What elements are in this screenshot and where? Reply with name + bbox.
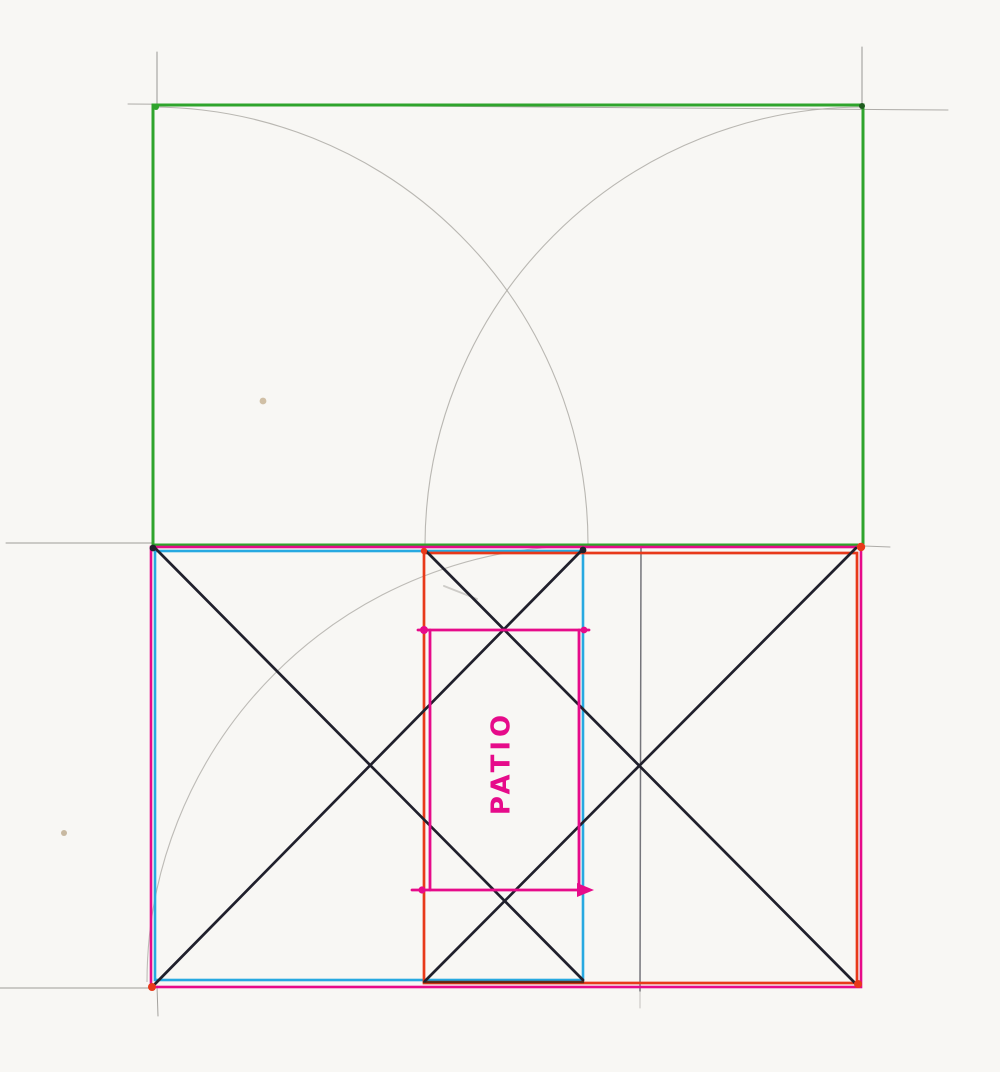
patio-label: PATIO <box>487 711 517 815</box>
paper-speck-lower <box>61 830 67 836</box>
patio-top-left-dot <box>420 626 428 634</box>
patio-top-right-dot <box>581 627 588 634</box>
pencil-center-vertical <box>640 548 641 991</box>
corner-dot-bottom-right <box>854 980 862 988</box>
patio-bottom-left-dot <box>418 886 425 893</box>
green-top-right-dot <box>859 103 865 109</box>
pencil-bottom-tick-vertical <box>157 986 158 1016</box>
strip-top-left-dot <box>421 548 427 554</box>
corner-dot-top-left <box>150 545 157 552</box>
diagonal-left-down <box>154 547 583 980</box>
pencil-arc-right <box>425 107 863 545</box>
green-top-left-dot <box>153 104 159 110</box>
patio-bottom-right-arrow <box>577 883 594 897</box>
plan-sketch-drawing: PATIO <box>0 0 1000 1072</box>
corner-dot-top-right <box>857 543 865 551</box>
pencil-arc-lower <box>147 546 583 982</box>
pencil-arc-left <box>152 107 588 545</box>
green-rectangle <box>153 105 863 545</box>
corner-dot-bottom-left <box>148 983 156 991</box>
pencil-mid-right-tick <box>864 546 890 547</box>
strip-top-right-dot <box>580 547 587 554</box>
diagonal-left-up <box>154 549 583 985</box>
paper-speck-upper <box>260 398 267 405</box>
paper-sheet: PATIO <box>0 0 1000 1072</box>
